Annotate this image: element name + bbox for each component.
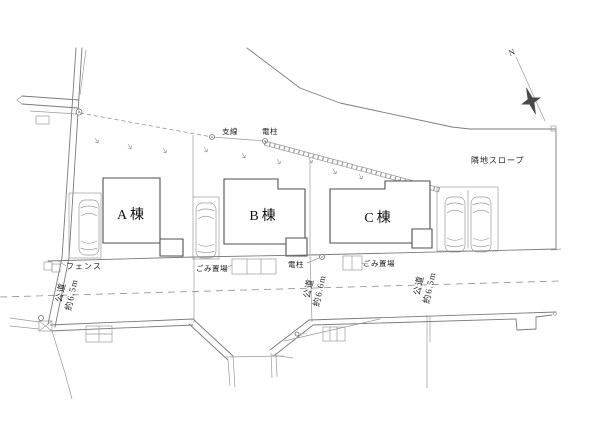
- fence-label: フェンス: [66, 261, 102, 272]
- north-arrow-icon: [516, 57, 545, 121]
- car-icon: [196, 203, 216, 258]
- neighbor-slope-label: 隣地スロープ: [471, 155, 525, 166]
- utility-pole-lower-label: 電柱: [288, 259, 304, 270]
- utility-pole-upper-label: 電柱: [262, 126, 278, 137]
- car-icon: [79, 200, 99, 255]
- parking-stall-middle: [193, 197, 219, 259]
- garbage-left-label: ごみ置場: [196, 263, 228, 274]
- building-a-label: A棟: [101, 204, 163, 224]
- site-plan-canvas: N 支線 電柱 隣地スロープ A棟 B棟 C棟 フェンス ごみ置場 電柱 ごみ置…: [0, 0, 600, 446]
- parking-stall-right: [437, 187, 498, 252]
- garbage-right-label: ごみ置場: [363, 258, 395, 269]
- road-centerline: [0, 281, 560, 297]
- site-plan-linework: [0, 0, 600, 446]
- guy-wire-label: 支線: [222, 126, 238, 137]
- building-b-label: B棟: [233, 205, 295, 225]
- garbage-box-left: [226, 259, 276, 274]
- overhead-wire: [80, 113, 268, 144]
- pole-lower-icon: [307, 255, 325, 264]
- left-branch-road: [17, 96, 79, 124]
- lower-right-lot: [270, 312, 557, 378]
- intersection-pole-icon: [76, 109, 82, 115]
- parking-stall-left: [69, 193, 101, 258]
- car-icon: [445, 197, 465, 252]
- lower-left-lot: [10, 316, 284, 400]
- car-icon: [471, 197, 491, 252]
- building-c-label: C棟: [348, 207, 410, 227]
